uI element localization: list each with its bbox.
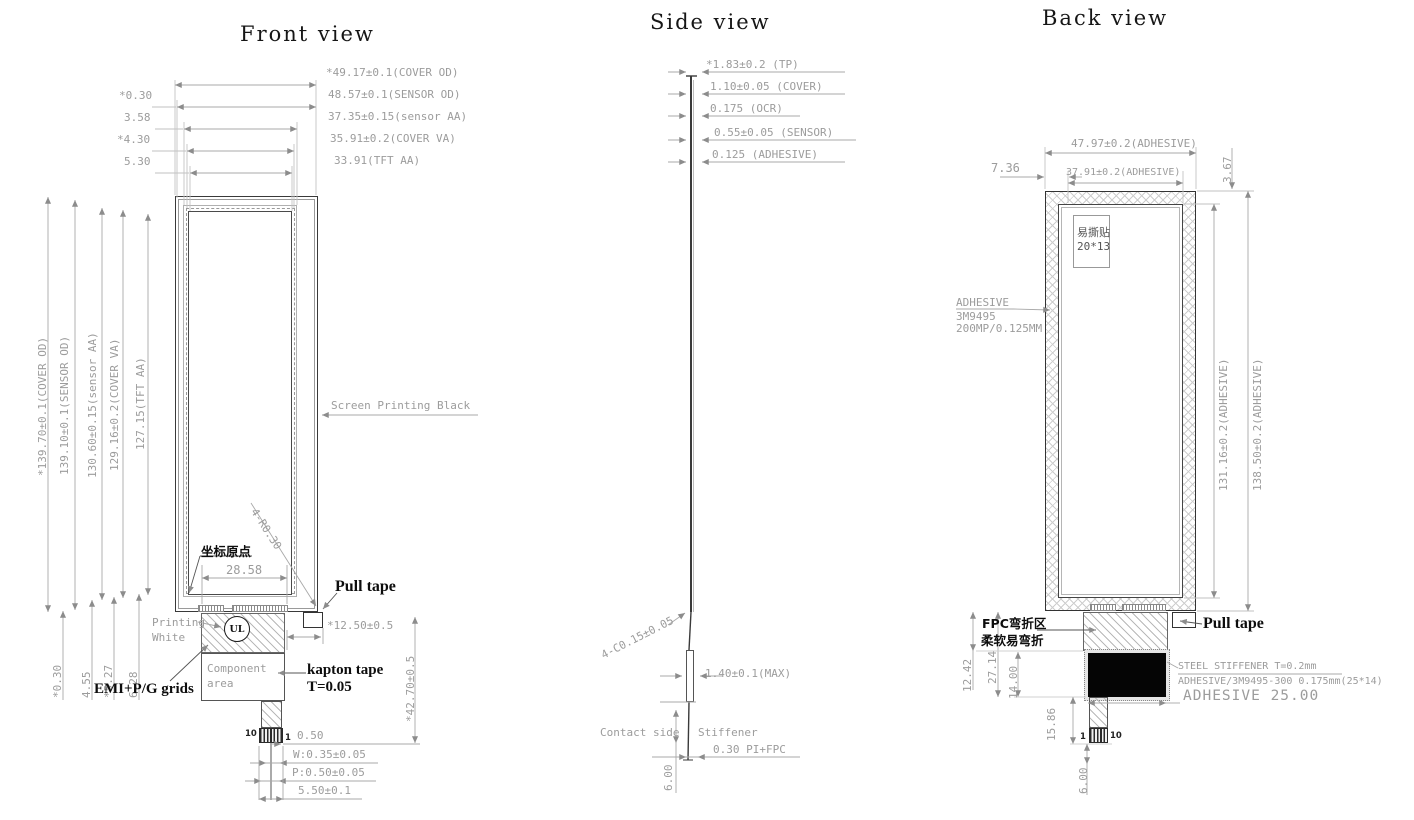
back-pin-1-label: 1 <box>1080 732 1086 742</box>
front-dim-030-top: *0.30 <box>119 89 152 102</box>
front-tail-centerline <box>270 743 272 800</box>
ul-certification-mark: UL <box>224 616 250 642</box>
side-glass-stack-line2 <box>693 80 694 612</box>
front-vdim-sensor-od: 139.10±0.1(SENSOR OD) <box>58 336 71 475</box>
back-contact-pads-left <box>1090 604 1116 611</box>
back-dim-15-86: 15.86 <box>1045 708 1058 741</box>
back-adhesive-note-line1: ADHESIVE <box>956 296 1009 309</box>
side-dim-adhesive: 0.125 (ADHESIVE) <box>712 148 818 161</box>
side-stiffener-outline <box>686 650 694 702</box>
front-contact-pads-left <box>198 605 224 612</box>
front-vdim-cover-va: 129.16±0.2(COVER VA) <box>108 339 121 471</box>
side-chamfer-label: 4-C0.15±0.05 <box>599 614 676 662</box>
front-dim-530: 5.30 <box>124 155 151 168</box>
back-dim-6-00: 6.00 <box>1077 768 1090 795</box>
back-left-offset-dim: 7.36 <box>991 161 1020 175</box>
front-pin-dim-550: 5.50±0.1 <box>298 784 351 797</box>
front-fpc-length-dim: *42.70±0.5 <box>404 656 417 722</box>
front-pin-1-label: 1 <box>285 733 291 743</box>
front-pin-10-label: 10 <box>245 729 257 739</box>
engineering-drawing-canvas: UL <box>0 0 1414 820</box>
back-dim-14-00: 14.00 <box>1007 666 1020 699</box>
side-fpc-stack-dim: 0.30 PI+FPC <box>713 743 786 756</box>
back-steel-stiffener-note2: ADHESIVE/3M9495-300 0.175mm(25*14) <box>1178 676 1383 687</box>
back-dim-27-14: 27.14 <box>986 651 999 684</box>
front-pull-tape-label: Pull tape <box>335 578 396 596</box>
back-pull-tape-label: Pull tape <box>1203 615 1264 633</box>
back-adhesive-note-line3: 200MP/0.125MM <box>956 322 1042 335</box>
back-adhesive-width-dim: ADHESIVE 25.00 <box>1183 688 1319 704</box>
front-dim-358: 3.58 <box>124 111 151 124</box>
back-pull-tape-tab <box>1172 612 1196 628</box>
front-vdim-cover-od: *139.70±0.1(COVER OD) <box>36 337 49 476</box>
front-origin-label: 坐标原点 <box>201 541 251 560</box>
side-bottom-length-dim: 6.00 <box>662 765 675 792</box>
side-dim-tp: *1.83±0.2 (TP) <box>706 58 799 71</box>
front-view-title: Front view <box>240 22 375 46</box>
back-connector-pins <box>1089 728 1108 743</box>
side-max-thickness-dim: 1.40±0.1(MAX) <box>705 667 791 680</box>
front-vdim-455: 4.55 <box>80 672 93 699</box>
ul-mark-text: UL <box>230 624 245 635</box>
side-stiffener-label: Stiffener <box>698 726 758 739</box>
back-view-title: Back view <box>1042 6 1168 30</box>
front-vdim-sensor-aa: 130.60±0.15(sensor AA) <box>86 332 99 478</box>
front-component-area-line2: area <box>207 677 234 690</box>
front-dim-sensor-od: 48.57±0.1(SENSOR OD) <box>328 88 460 101</box>
back-vdim-adhesive-inner: 131.16±0.2(ADHESIVE) <box>1217 359 1230 491</box>
front-pin-dim-050: 0.50 <box>297 729 324 742</box>
front-connector-pins <box>259 728 283 743</box>
side-glass-stack-line <box>690 76 692 612</box>
back-steel-stiffener <box>1088 653 1166 697</box>
back-steel-stiffener-note1: STEEL STIFFENER T=0.2mm <box>1178 661 1316 672</box>
front-pull-tape-tab <box>303 612 323 628</box>
front-screen-printing-label: Screen Printing Black <box>331 399 470 412</box>
back-vdim-adhesive-od: 138.50±0.2(ADHESIVE) <box>1251 359 1264 491</box>
front-component-area-line1: Component <box>207 662 267 675</box>
back-dim-12-42: 12.42 <box>961 659 974 692</box>
front-pin-dim-width: W:0.35±0.05 <box>293 748 366 761</box>
front-top-dim-lines <box>175 85 316 173</box>
back-contact-pads-right <box>1122 604 1166 611</box>
back-pin-10-label: 10 <box>1110 731 1122 741</box>
front-printing-white-line2: White <box>152 631 185 644</box>
front-emi-grids-label: EMI+P/G grids <box>94 681 194 698</box>
back-fpc-tail <box>1089 697 1108 728</box>
front-pin-dim-pitch: P:0.50±0.05 <box>292 766 365 779</box>
side-view-title: Side view <box>650 10 771 34</box>
back-top-offset-dim: 3.67 <box>1221 157 1234 184</box>
front-vdim-tft-aa: 127.15(TFT AA) <box>134 357 147 450</box>
front-contact-pads-right <box>232 605 288 612</box>
back-adhesive-od-dim: 47.97±0.2(ADHESIVE) <box>1071 137 1197 150</box>
front-printing-white-line1: Printing <box>152 616 205 629</box>
side-dim-sensor: 0.55±0.05 (SENSOR) <box>714 126 833 139</box>
front-dim-tft-aa: 33.91(TFT AA) <box>334 154 420 167</box>
back-fpc-bend-region <box>1083 612 1168 651</box>
side-dim-ocr: 0.175 (OCR) <box>710 102 783 115</box>
side-contact-side-label: Contact side <box>600 726 679 739</box>
front-fpc-tail <box>261 701 282 728</box>
front-dim-430: *4.30 <box>117 133 150 146</box>
back-sticker-line2: 20*13 <box>1077 240 1110 253</box>
back-adhesive-inner-dim: 37.91±0.2(ADHESIVE) <box>1066 167 1180 178</box>
front-dim-cover-va: 35.91±0.2(COVER VA) <box>330 132 456 145</box>
back-sticker-line1: 易撕贴 <box>1077 224 1110 240</box>
front-dim-cover-od: *49.17±0.1(COVER OD) <box>326 66 458 79</box>
front-pull-tape-offset-dim: *12.50±0.5 <box>327 619 393 632</box>
front-kapton-tape-line2: T=0.05 <box>307 679 352 696</box>
front-vdim-030-bottom: *0.30 <box>51 665 64 698</box>
front-dim-sensor-aa: 37.35±0.15(sensor AA) <box>328 110 467 123</box>
back-fpc-bend-label-line2: 柔软易弯折 <box>981 630 1044 649</box>
front-bottom-width-dim: 28.58 <box>226 563 262 577</box>
front-top-extension-lines <box>152 80 316 211</box>
side-dim-cover: 1.10±0.05 (COVER) <box>710 80 823 93</box>
front-kapton-tape-line1: kapton tape <box>307 662 383 679</box>
